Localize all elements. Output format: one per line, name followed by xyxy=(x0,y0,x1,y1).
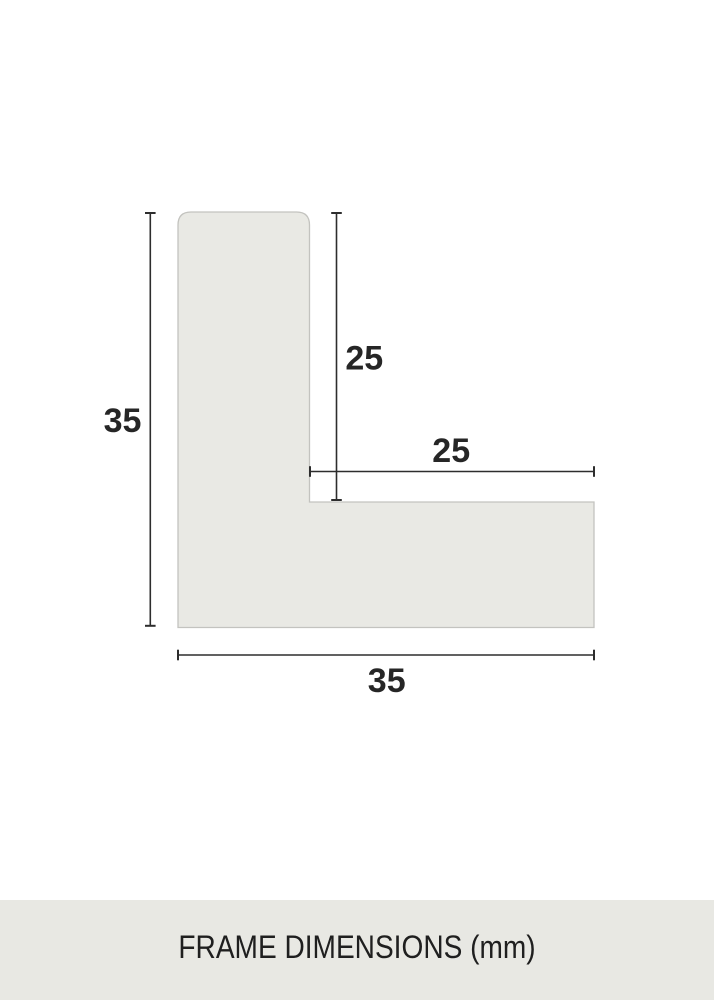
svg-text:25: 25 xyxy=(345,340,383,378)
svg-text:35: 35 xyxy=(368,662,406,700)
svg-text:25: 25 xyxy=(432,432,470,470)
svg-text:35: 35 xyxy=(104,402,142,440)
